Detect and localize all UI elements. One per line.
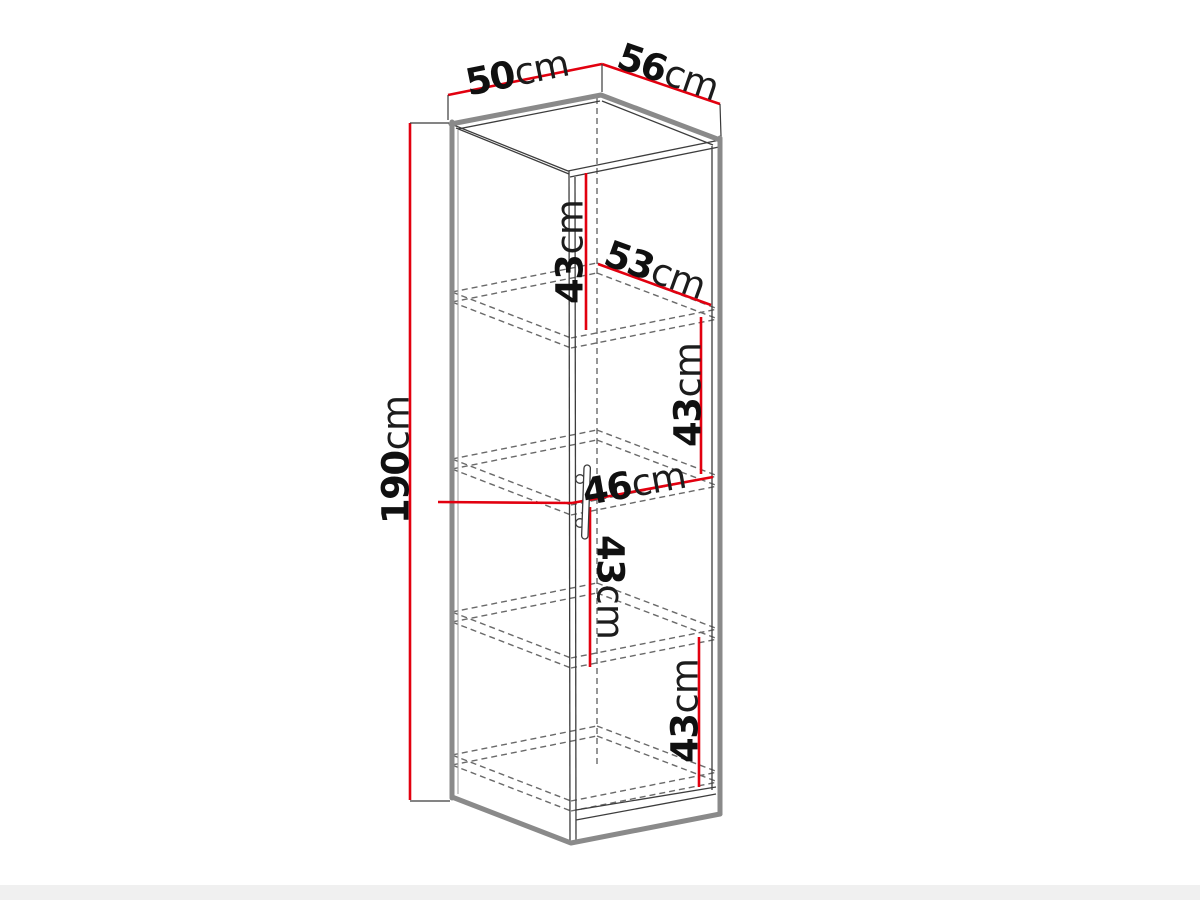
dimension-value: 43	[664, 714, 707, 763]
dimension-label-compartment-2: 43cm	[670, 343, 707, 447]
dimension-value: 43	[589, 535, 632, 584]
cabinet-line-drawing	[0, 0, 1200, 900]
dimension-label-compartment-3: 43cm	[592, 535, 629, 639]
diagram-canvas: 50cm 56cm 190cm 43cm 53cm 43cm 46cm 43cm…	[0, 0, 1200, 900]
dimension-unit: cm	[375, 396, 418, 450]
bottom-outline	[452, 797, 720, 843]
dimension-value: 46	[579, 463, 634, 514]
dimension-label-total-height: 190cm	[378, 396, 415, 524]
dimension-value: 43	[549, 255, 592, 304]
dimension-unit: cm	[664, 659, 707, 713]
top-outline	[451, 95, 720, 140]
dimension-unit: cm	[667, 343, 710, 397]
dimension-label-compartment-1: 43cm	[552, 200, 589, 304]
dim-line-interior-width-left	[438, 502, 572, 503]
dimension-value: 43	[667, 398, 710, 447]
dimension-label-compartment-4: 43cm	[667, 659, 704, 763]
dimension-value: 190	[375, 451, 418, 524]
photo-bottom-edge	[0, 885, 1200, 900]
dimension-unit: cm	[549, 200, 592, 254]
dimension-unit: cm	[589, 585, 632, 639]
